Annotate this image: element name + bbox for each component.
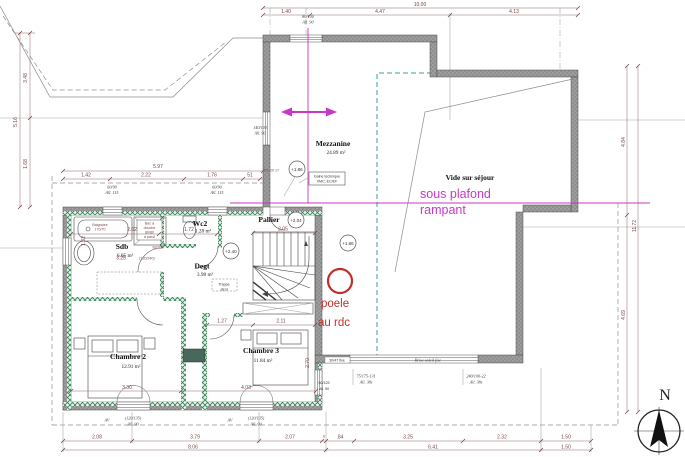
window-label-roof1-1: 75/175-131 (356, 374, 375, 379)
level-degt: +2.40 (225, 249, 237, 254)
dim-wing-3: 1.76 (207, 173, 217, 179)
window-label-roof1-2: All. 38s (359, 380, 373, 385)
dim-bottom-a5: .84 (337, 435, 344, 441)
dim-int-182: 1.82 (81, 236, 87, 246)
room-area-degt: 3.98 m² (197, 272, 214, 278)
dim-bottom-a2: 3.79 (190, 435, 200, 441)
window-label-wing2-2: All. 115 (210, 190, 224, 195)
room-label-vide-sejour: Vide sur séjour (446, 173, 495, 182)
poele-annotation (328, 269, 352, 293)
bathtub-label-1: Baignoire (92, 223, 107, 227)
window-label-bottom1-2: All. 90 (126, 422, 139, 427)
dim-right-1: 4.84 (621, 137, 627, 147)
room-area-mezzanine: 24.89 m² (327, 150, 346, 156)
room-label-sdb: Sdb (116, 242, 129, 251)
double-arrow-left (281, 108, 292, 117)
room-label-chambre3: Chambre 3 (243, 346, 279, 355)
gaine-technique-line1: Gaine technique (314, 175, 340, 179)
dim-bottom-b1: 8.06 (188, 445, 198, 451)
window-wing-1 (103, 207, 122, 215)
texts: Mezzanine 24.89 m² Vide sur séjour Palli… (13, 2, 671, 451)
dim-int-262: 2.62 (127, 227, 137, 233)
window-label-wing2-1: 60/90 (212, 185, 222, 190)
annotation-sous-plafond-1: sous plafond (420, 187, 491, 201)
trappe-line2: atrol (221, 288, 228, 292)
dim-bottom-a7: 2.32 (497, 435, 507, 441)
flue-duct (183, 349, 205, 362)
section-axis (230, 28, 650, 203)
room-label-chambre2: Chambre 2 (110, 352, 146, 361)
pallier-door-gap (270, 207, 285, 215)
dim-wing-total: 5.97 (153, 164, 163, 170)
room-label-wc2: Wc2 (193, 219, 208, 228)
annotation-poele-2: au rdc (318, 317, 350, 329)
bed-chambre2 (74, 336, 155, 398)
window-label-wing1-1: 60/90 (107, 185, 117, 190)
dim-top-3: 4.13 (509, 9, 519, 15)
window-label-stairwall-1: 60/125 (319, 381, 330, 385)
dim-top-total: 10.00 (414, 2, 427, 8)
window-label-roof2-2: All. 38s (469, 380, 483, 385)
window-wing-2 (208, 207, 227, 215)
dim-bottom-a1: 2.08 (92, 435, 102, 441)
dim-bottom-a3: 2.07 (285, 435, 295, 441)
dim-right-total: 11.72 (632, 220, 638, 232)
room-area-wc2: 1.28 m² (195, 229, 212, 235)
dim-int-127: 1.27 (217, 319, 227, 325)
room-label-degt: Degt (195, 262, 210, 271)
dim-right-2: 4.69 (621, 310, 627, 320)
dim-top-2: 4.47 (375, 9, 385, 15)
dim-int-403: 4.03 (241, 385, 251, 391)
window-label-top-2: All. 90 (301, 20, 314, 25)
window-label-brise-soleil: Brise-soleil fixe (415, 358, 442, 363)
room-label-mezzanine: Mezzanine (316, 139, 351, 148)
door-size-label: 83/208 (153, 246, 164, 250)
dim-left-1: 3.48 (23, 73, 29, 83)
dim-bottom-a4: 6 (323, 435, 325, 439)
dim-int-211: 2.11 (276, 319, 286, 325)
gaine-technique-line2: VMC, EC/EF (317, 180, 338, 184)
annotation-sous-plafond-2: rampant (420, 203, 466, 217)
dim-bottom-a6: 3.25 (403, 435, 413, 441)
dim-int-205: 2.05 (278, 227, 288, 233)
bed-chambre3 (241, 330, 308, 385)
annotation-poele-1: poele (321, 298, 349, 310)
room-area-chambre2: 12.91 m² (122, 364, 141, 370)
window-label-bottom2-2: All. 90 (249, 422, 262, 427)
shutter-label-av1: AV (104, 418, 110, 423)
poele-circle (328, 269, 352, 293)
compass (634, 407, 684, 455)
dim-left-2: 1.68 (23, 159, 29, 169)
room-area-chambre3: 11.84 m² (254, 358, 273, 364)
bay-size-label: (120/240) (139, 257, 154, 261)
window-label-bottom2-1: (120/135) (248, 416, 265, 421)
dim-bottom-a8: 1.50 (561, 435, 571, 441)
trappe-line1: Trappe (218, 283, 229, 287)
dim-int-325: 3.25 (116, 256, 126, 262)
floor-plan-drawing: Mezzanine 24.89 m² Vide sur séjour Palli… (0, 0, 685, 457)
window-label-stairwall-2: All. 90 (319, 387, 329, 391)
dim-bottom-b2: 6.41 (428, 445, 438, 451)
window-label-top-1: 80/100 (302, 14, 315, 19)
dim-wing-4: 51 (247, 173, 253, 179)
shower-label-3: 80/80 (145, 231, 154, 235)
dim-bottom-b3: 1.50 (561, 445, 571, 451)
dim-wing-1: 1.42 (81, 173, 91, 179)
interior-partitions (71, 215, 243, 410)
window-label-wing1-2: All. 115 (105, 190, 119, 195)
dim-left-total: 5.16 (13, 117, 19, 127)
bathtub-label-2: 170/70 (95, 228, 106, 232)
shower-label-2: douche (144, 226, 156, 230)
shutter-label-av2: AV (227, 418, 233, 423)
window-top-80x100 (290, 35, 322, 42)
dim-int-330: 3.30 (122, 385, 132, 391)
dim-int-172: 1.72 (184, 227, 194, 233)
window-label-roof2-1: 240/100-22 (466, 374, 485, 379)
level-pallier: +2.04 (290, 218, 302, 223)
compass-label: N (659, 387, 671, 404)
room-label-pallier: Pallier (258, 215, 280, 224)
door-chambre2 (137, 299, 163, 325)
closet-chambre3 (243, 303, 313, 314)
dim-int-270: 2.70 (305, 358, 311, 368)
dim-top-1: 1.40 (281, 9, 291, 15)
window-label-left-1: 140/100 (253, 125, 268, 130)
floor-plan-canvas: Mezzanine 24.89 m² Vide sur séjour Palli… (0, 0, 685, 457)
double-arrow-right (326, 108, 337, 117)
window-wing-left (63, 238, 71, 265)
window-label-left-2: All. 90 (253, 131, 266, 136)
level-stair: +1.86 (342, 241, 354, 246)
dim-wing-5: 20 20 17 (265, 169, 279, 173)
staircase (253, 232, 315, 300)
dim-wing-2: 2.22 (141, 173, 151, 179)
shower-label-1: Bac à (145, 222, 154, 226)
window-label-bottom1-1: (120/135) (125, 416, 142, 421)
bathroom-cabinet (97, 272, 163, 294)
window-label-fixe: 30/47 fixe (329, 359, 345, 363)
level-mezzanine: +1.86 (291, 167, 303, 172)
shower-label-4: à paroi (144, 235, 155, 239)
